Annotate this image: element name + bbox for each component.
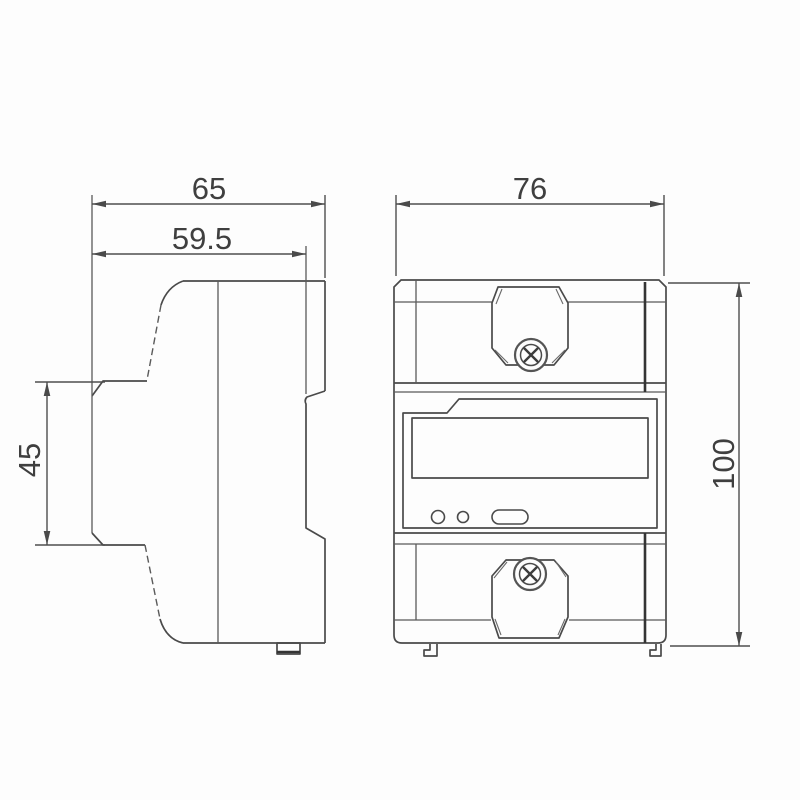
- front-view: [394, 280, 666, 656]
- bottom-terminal-cover-boss: [492, 558, 568, 638]
- side-bottom-slope: [145, 545, 160, 619]
- led-indicator-1: [432, 511, 445, 524]
- dimension-label-100: 100: [706, 438, 741, 490]
- arrowhead-top: [736, 283, 743, 297]
- front-left-foot: [424, 644, 437, 656]
- side-view: [92, 195, 325, 654]
- dimension-side-body-depth: 59.5: [92, 221, 306, 257]
- dimension-label-65: 65: [192, 171, 226, 206]
- arrowhead-top: [44, 382, 51, 396]
- side-top-shoulder: [161, 281, 183, 305]
- dimension-label-45: 45: [12, 443, 47, 477]
- arrowhead-bottom: [736, 632, 743, 646]
- dimension-front-width: 76: [396, 171, 664, 276]
- side-din-clip-tab: [277, 643, 300, 654]
- side-bottom-shoulder: [160, 619, 183, 643]
- technical-drawing-canvas: 65 59.5 45: [0, 0, 800, 800]
- arrowhead-left: [92, 201, 106, 208]
- led-indicator-2: [458, 512, 469, 523]
- bottom-screw-icon: [514, 558, 546, 590]
- dimension-label-76: 76: [513, 171, 547, 206]
- top-terminal-cover-boss: [492, 287, 568, 371]
- dimension-front-height: 100: [668, 283, 750, 646]
- side-top-slope: [147, 305, 161, 380]
- lcd-display: [412, 418, 648, 478]
- arrowhead-right: [311, 201, 325, 208]
- meter-dimension-drawing: 65 59.5 45: [0, 0, 800, 800]
- side-bottom-ledge: [92, 533, 145, 545]
- push-button: [492, 510, 528, 524]
- dimension-side-front-height: 45: [12, 382, 105, 545]
- arrowhead-left: [92, 251, 106, 258]
- arrowhead-right: [650, 201, 664, 208]
- side-din-rail-notch: [305, 391, 325, 643]
- arrowhead-bottom: [44, 531, 51, 545]
- dimension-label-59-5: 59.5: [172, 221, 232, 256]
- top-screw-icon: [515, 339, 547, 371]
- arrowhead-right: [292, 251, 306, 258]
- front-right-foot: [650, 644, 661, 656]
- arrowhead-left: [396, 201, 410, 208]
- face-plate: [403, 399, 657, 528]
- side-top-ledge: [92, 381, 147, 396]
